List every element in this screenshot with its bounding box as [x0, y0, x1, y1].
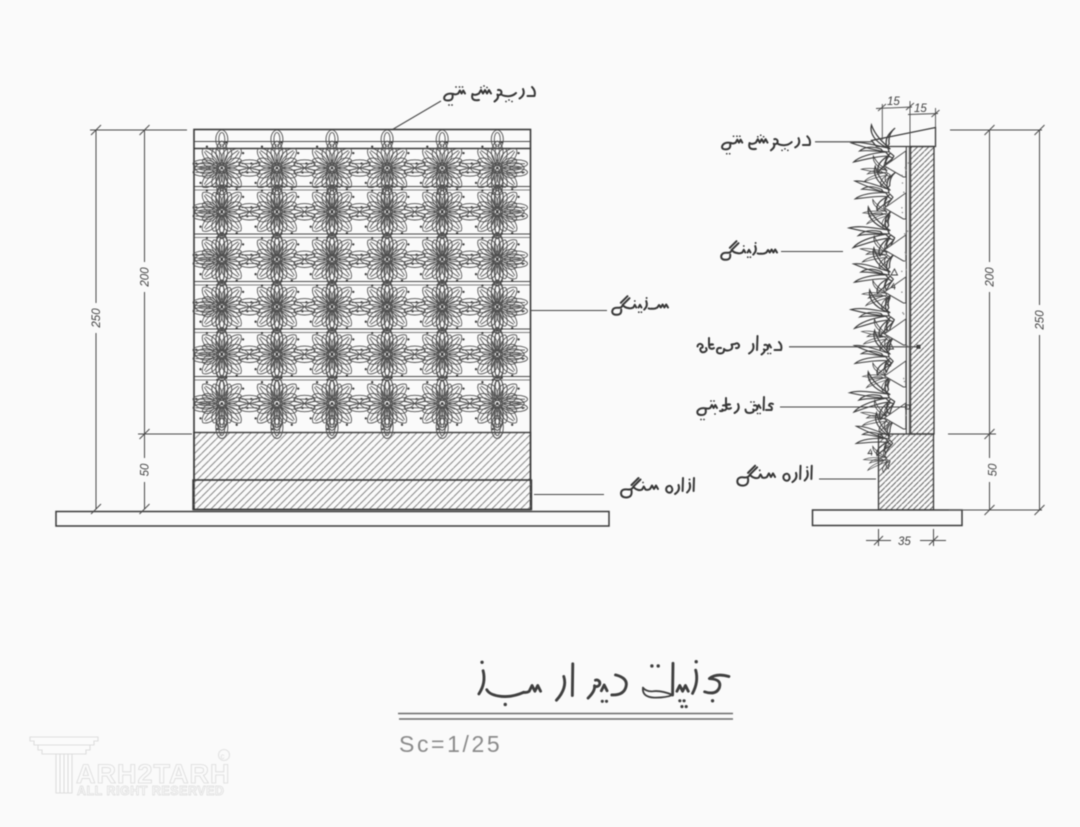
svg-text:250: 250	[1035, 310, 1047, 331]
svg-text:250: 250	[91, 308, 103, 329]
svg-text:50: 50	[140, 463, 152, 476]
svg-text:ALL RIGHT RESERVED: ALL RIGHT RESERVED	[77, 784, 224, 798]
svg-text:200: 200	[140, 267, 152, 288]
svg-text:Sc=1/25: Sc=1/25	[399, 731, 502, 757]
svg-text:50: 50	[988, 463, 1000, 476]
svg-text:35: 35	[898, 536, 911, 548]
svg-text:c: c	[221, 752, 225, 761]
svg-text:200: 200	[985, 267, 997, 288]
svg-text:15: 15	[914, 103, 927, 115]
svg-text:15: 15	[887, 96, 900, 108]
